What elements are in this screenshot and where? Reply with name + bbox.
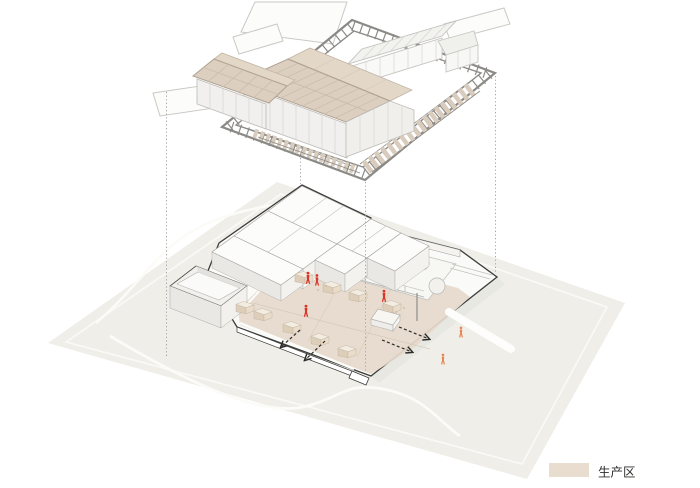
exploded-axonometric-drawing: 生产区 bbox=[0, 0, 700, 488]
courtyard-tree-circle bbox=[429, 278, 445, 294]
legend: 生产区 bbox=[549, 463, 636, 480]
flat-roof-sheet bbox=[444, 8, 510, 40]
legend-label: 生产区 bbox=[598, 466, 636, 480]
roof-assembly bbox=[153, 2, 510, 180]
axonometric-diagram-canvas: 生产区 bbox=[0, 0, 700, 488]
legend-swatch bbox=[549, 463, 589, 477]
lean-to-volume bbox=[438, 31, 478, 72]
